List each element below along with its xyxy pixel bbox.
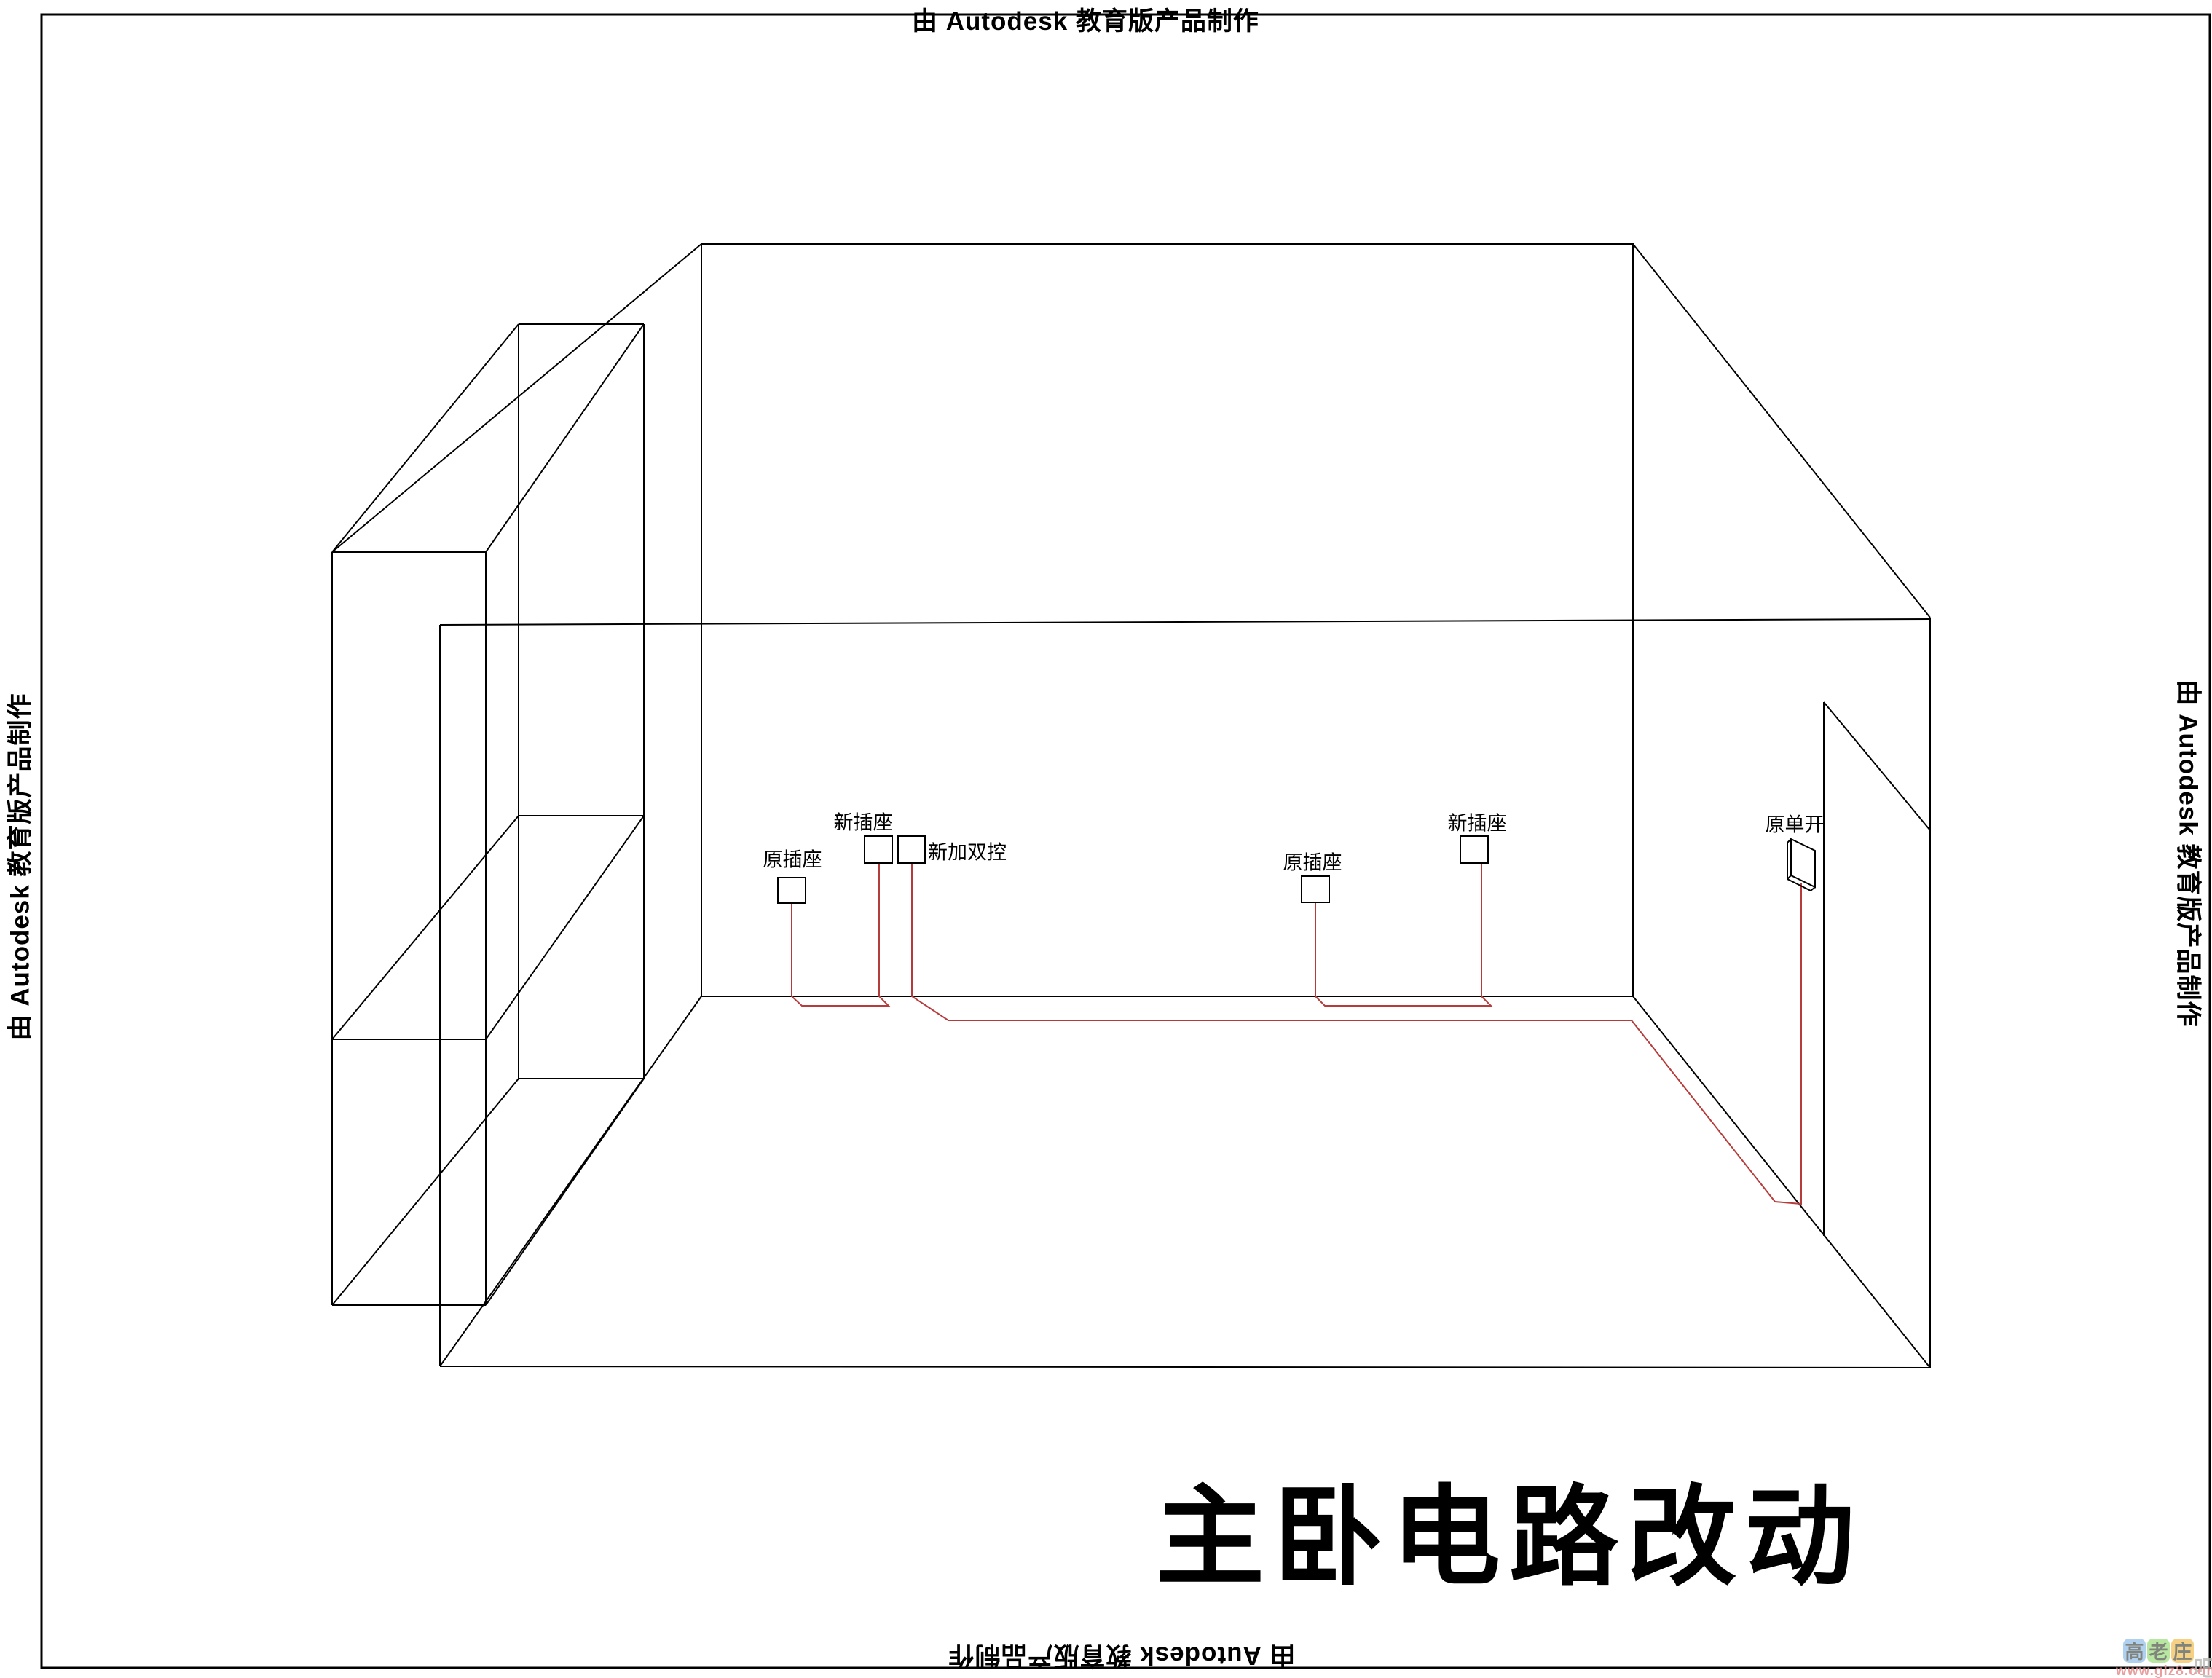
logo-tile-3: 庄 [2171, 1639, 2194, 1663]
cad-sheet: 由 Autodesk 教育版产品制作 由 Autodesk 教育版产品制作 由 … [0, 0, 2212, 1678]
ceiling-left-edge [332, 244, 701, 552]
watermark-right: 由 Autodesk 教育版产品制作 [2172, 680, 2209, 1028]
site-logo: 高 老 庄 吧 www.glz8.com [2123, 1639, 2212, 1678]
label-socket-old-right: 原插座 [1283, 847, 1342, 875]
door-frame [1824, 702, 1930, 1236]
floor-front-edge [440, 1366, 1930, 1368]
closet-wireframe [332, 324, 644, 1305]
socket-old-right-symbol [1302, 876, 1329, 902]
dual-control-symbol [898, 836, 925, 863]
logo-tile-2: 老 [2147, 1639, 2170, 1663]
socket-new-right-symbol [1460, 836, 1488, 863]
drawing-title: 主卧电路改动 [1155, 1449, 1863, 1607]
logo-url-text: www.glz8.com [2116, 1663, 2212, 1678]
wiring [792, 863, 1801, 1204]
sheet-border [42, 15, 2210, 1668]
room-wireframe [332, 244, 1930, 1368]
socket-new-left-symbol [865, 836, 892, 863]
floor-left-edge [440, 996, 701, 1366]
watermark-bottom: 由 Autodesk 教育版产品制作 [948, 1639, 1296, 1677]
wireframe-drawing [0, 0, 2212, 1678]
wire-old-to-new-socket-right [1315, 863, 1491, 1006]
label-socket-old-left: 原插座 [763, 844, 822, 873]
front-top-edge [440, 619, 1930, 625]
label-socket-new-right: 新插座 [1448, 808, 1507, 836]
floor-right-edge [1633, 996, 1930, 1368]
logo-tile-1: 高 [2123, 1639, 2146, 1663]
watermark-left: 由 Autodesk 教育版产品制作 [0, 693, 37, 1041]
ceiling-right-edge [1633, 244, 1930, 618]
watermark-top: 由 Autodesk 教育版产品制作 [912, 1, 1259, 38]
socket-symbols [778, 836, 1488, 903]
label-dual-control-new: 新加双控 [928, 837, 1007, 865]
label-socket-new-left: 新插座 [834, 807, 893, 835]
site-logo-tiles: 高 老 庄 [2123, 1639, 2194, 1663]
socket-old-left-symbol [778, 878, 806, 903]
label-switch-old: 原单开 [1766, 809, 1825, 838]
wire-dual-control-to-switch [912, 863, 1801, 1204]
